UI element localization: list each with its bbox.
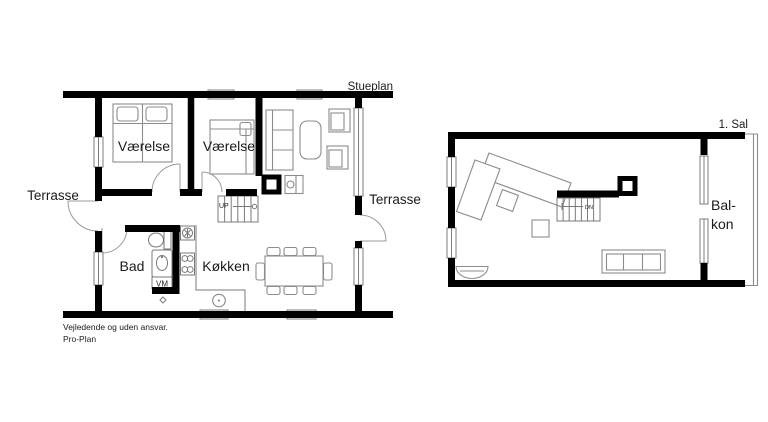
washing-machine-label: VM: [156, 280, 168, 289]
staircase-down: [557, 198, 600, 221]
kitchen-label: Køkken: [202, 258, 249, 274]
bathroom-sink: [152, 250, 172, 277]
bathroom-door: [102, 228, 127, 253]
bedroom1-door: [152, 164, 180, 192]
wood-stove: [285, 176, 303, 194]
desk-chair: [497, 190, 519, 212]
disclaimer-line2: Pro-Plan: [63, 334, 96, 344]
stairs-down-label: DN: [585, 205, 593, 211]
kitchen-sink: [213, 294, 226, 307]
stairs-up-label: UP: [219, 203, 229, 210]
armchair: [329, 109, 350, 132]
living-room-sofa: [266, 110, 293, 170]
disclaimer-line1: Vejledende og uden ansvar.: [63, 322, 168, 332]
bedroom2-door: [202, 172, 222, 192]
corner-desk: [457, 153, 572, 220]
bathroom-label: Bad: [120, 258, 145, 274]
chimney: [620, 179, 635, 194]
first-floor-sofa: [602, 250, 665, 273]
terrace-door-right: [360, 215, 386, 241]
terrace-left-label: Terrasse: [27, 188, 79, 203]
floor-drain-icon: [160, 297, 166, 303]
stove-burners: [181, 253, 195, 275]
floorplan-drawing: Stueplan Terrasse Terrasse Værelse Værel…: [0, 0, 768, 422]
armchair: [327, 146, 348, 169]
first-floor-title: 1. Sal: [719, 119, 748, 131]
chimney: [264, 177, 279, 192]
bedroom1-label: Værelse: [118, 138, 170, 154]
terrace-right-label: Terrasse: [369, 192, 421, 207]
side-table: [532, 220, 549, 237]
bedroom2-label: Værelse: [203, 138, 255, 154]
half-round-shelf: [456, 267, 488, 279]
terrace-door-left: [68, 201, 98, 231]
toilet: [149, 232, 172, 250]
balcony-label-line2: kon: [711, 216, 734, 232]
dining-table-set: [256, 248, 332, 295]
floorplan-canvas: Stueplan Terrasse Terrasse Værelse Værel…: [0, 0, 768, 422]
coffee-table: [300, 121, 321, 159]
balcony-label-line1: Bal-: [711, 197, 736, 213]
ground-floor-title: Stueplan: [348, 81, 393, 93]
extractor-fan-icon: [181, 226, 195, 240]
